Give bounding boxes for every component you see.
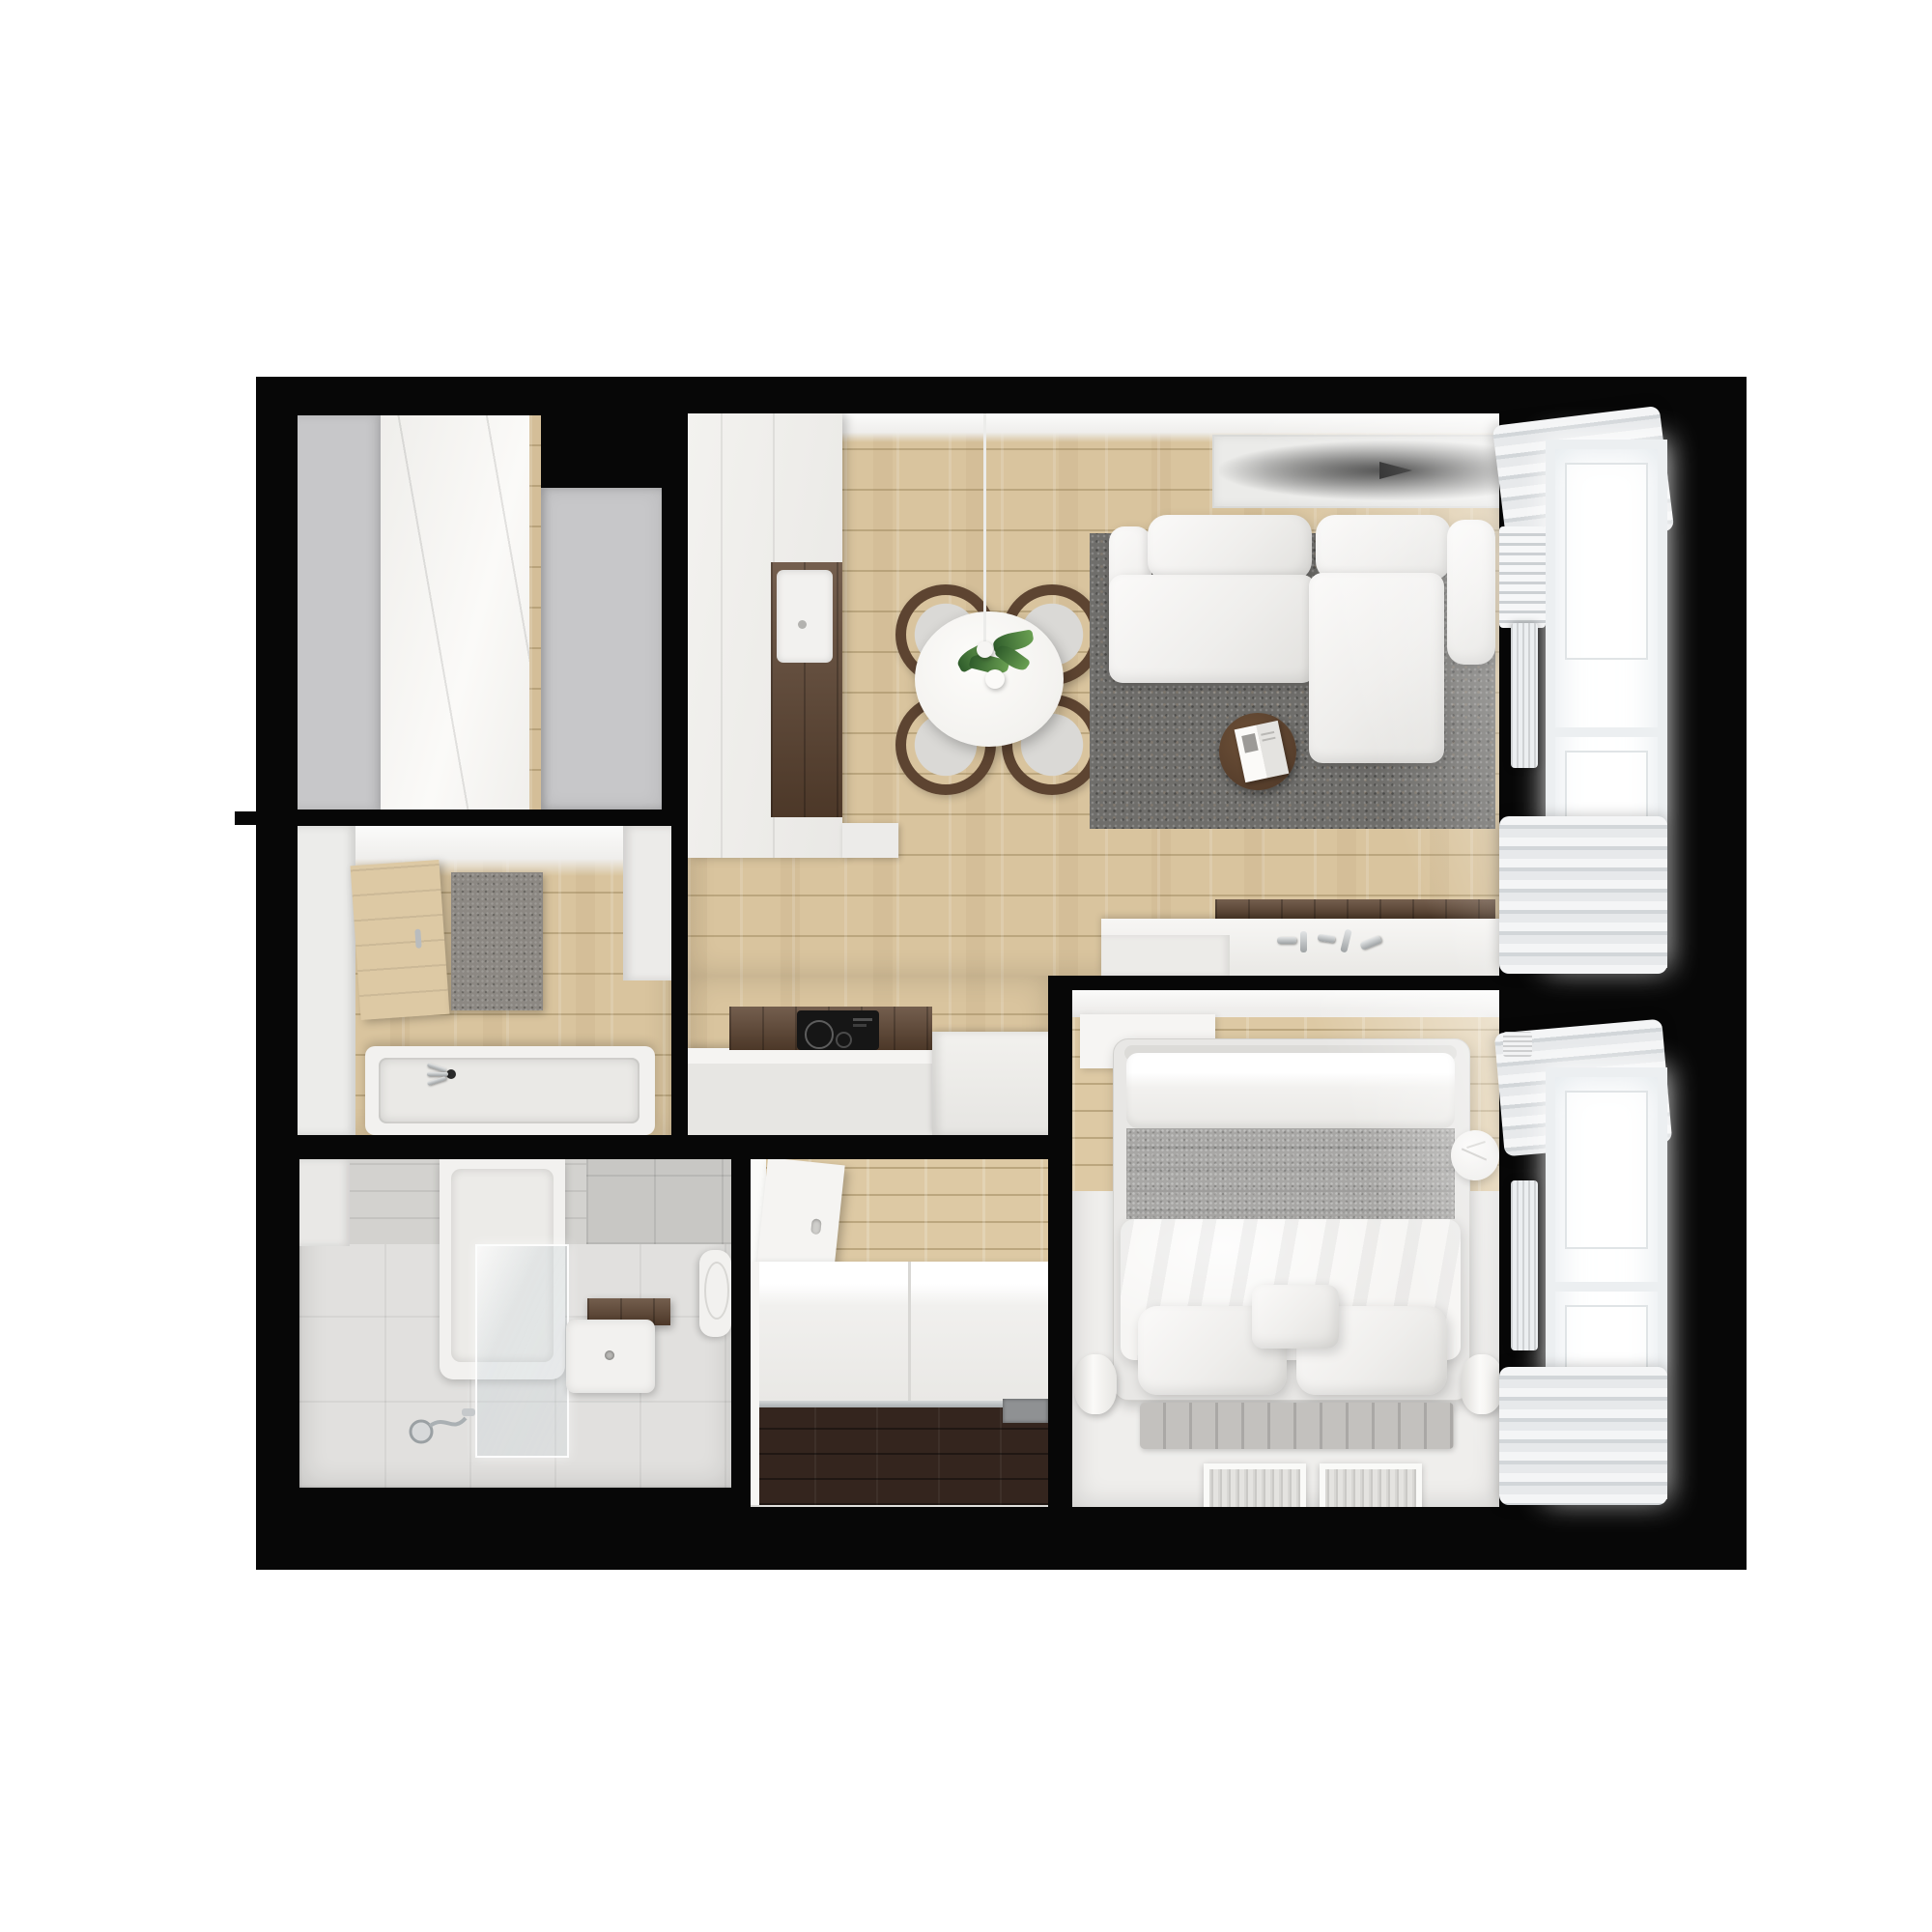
bathtub-rim bbox=[379, 1058, 639, 1123]
door-handle bbox=[414, 928, 421, 948]
shower-glass-screen bbox=[475, 1244, 569, 1458]
plant-vase bbox=[985, 669, 1005, 689]
living-window-bay bbox=[1499, 413, 1671, 976]
bolster-left bbox=[1074, 1354, 1117, 1414]
tv-screen-blur bbox=[1219, 440, 1499, 500]
tv-antenna-tip bbox=[1379, 462, 1412, 479]
room-storage-bed bbox=[751, 1159, 1048, 1507]
room-shower-bathroom bbox=[299, 1159, 731, 1488]
floor-plan-stage bbox=[0, 0, 1932, 1932]
sofa-seat bbox=[1109, 575, 1316, 683]
storage-bed-mattress bbox=[755, 1262, 1048, 1401]
pendant-lamp-cord bbox=[983, 413, 986, 645]
induction-cooktop bbox=[797, 1010, 879, 1050]
mattress-fold bbox=[1126, 1053, 1455, 1128]
room-master-bedroom bbox=[1072, 990, 1499, 1507]
bathtub-room-right-wall bbox=[623, 826, 671, 980]
bed-side-rail bbox=[751, 1262, 759, 1505]
room-living-dining bbox=[688, 413, 1499, 976]
room-bathtub-bathroom bbox=[298, 826, 671, 1135]
room-entry-hall bbox=[298, 415, 541, 810]
curtain-gathered-bottom bbox=[1499, 816, 1667, 974]
pendant-lamp bbox=[977, 641, 993, 658]
bedroom-window-bay bbox=[1499, 1026, 1671, 1507]
washbasin bbox=[566, 1320, 655, 1393]
ribbed-runner-rug bbox=[1140, 1403, 1454, 1449]
bedroom-radiator bbox=[1511, 1180, 1538, 1350]
hall-side-wall bbox=[298, 415, 381, 810]
cabinet-sink-niche bbox=[771, 562, 842, 817]
bathtub bbox=[365, 1046, 655, 1135]
framed-print bbox=[1204, 1463, 1306, 1507]
left-wall-tick bbox=[235, 811, 260, 825]
cabinet-counter-return bbox=[842, 823, 898, 858]
curtain-slats bbox=[1499, 526, 1546, 628]
island-faucets bbox=[1277, 923, 1393, 966]
niche-basin bbox=[777, 570, 833, 663]
wardrobe bbox=[381, 415, 529, 810]
sofa-back-cushion bbox=[1316, 515, 1451, 581]
hall-floor-sliver bbox=[529, 415, 541, 810]
towel-mat bbox=[451, 872, 543, 1010]
counter-raised-block bbox=[932, 1032, 1048, 1135]
shower-room-door-gap bbox=[299, 1159, 350, 1246]
bathtub-room-left-wall bbox=[298, 826, 355, 1135]
framed-print bbox=[1320, 1463, 1422, 1507]
island-walnut-edge bbox=[1215, 899, 1495, 919]
sofa-right-armrest bbox=[1447, 520, 1495, 665]
island-left-ledge bbox=[1101, 935, 1230, 976]
open-door-panel bbox=[351, 860, 450, 1020]
plant-centerpiece bbox=[956, 631, 1034, 691]
marble-side-table bbox=[1451, 1130, 1499, 1180]
kitchen-tall-cabinet bbox=[688, 413, 842, 858]
sofa-back-cushion bbox=[1148, 515, 1312, 581]
bolster-right bbox=[1461, 1354, 1499, 1414]
air-vent bbox=[1503, 1032, 1532, 1057]
curtain-gathered-bottom bbox=[1499, 1367, 1667, 1505]
room-kitchen-corridor bbox=[688, 976, 1048, 1135]
bathtub-faucet bbox=[427, 1062, 460, 1089]
gray-blanket bbox=[1126, 1128, 1455, 1219]
shower-room-big-tiles bbox=[586, 1159, 731, 1244]
hall-tall-cabinet bbox=[541, 488, 662, 810]
toilet bbox=[699, 1250, 731, 1337]
hand-shower bbox=[404, 1389, 477, 1453]
living-radiator bbox=[1511, 623, 1538, 768]
bed-metal-bracket bbox=[1003, 1399, 1048, 1423]
pillow-small bbox=[1252, 1285, 1339, 1349]
sofa-chaise bbox=[1309, 573, 1444, 763]
